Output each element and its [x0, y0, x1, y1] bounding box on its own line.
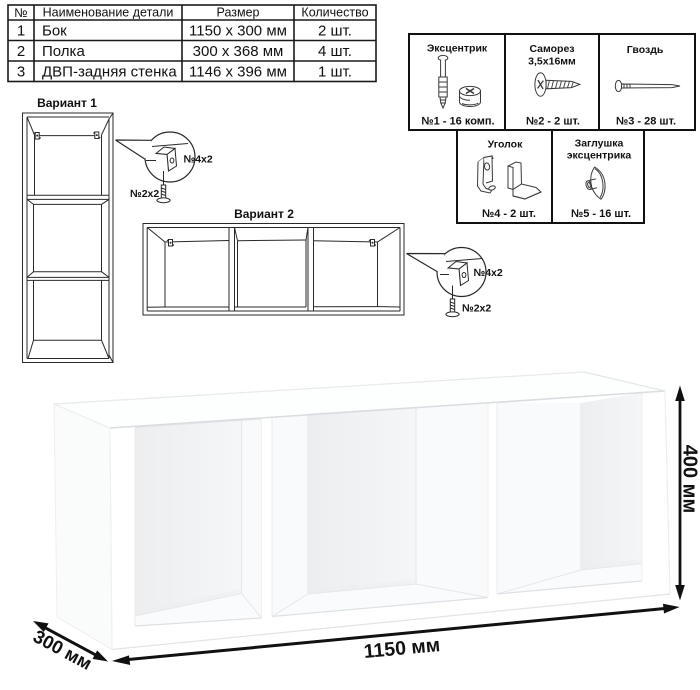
- svg-text:Наименование детали: Наименование детали: [43, 6, 174, 20]
- svg-text:Бок: Бок: [42, 23, 67, 40]
- svg-text:4 шт.: 4 шт.: [318, 43, 352, 60]
- svg-text:№2х2: №2х2: [130, 188, 159, 200]
- svg-text:№3 - 28 шт.: №3 - 28 шт.: [616, 116, 676, 128]
- svg-text:Количество: Количество: [301, 6, 368, 20]
- svg-text:Размер: Размер: [217, 6, 260, 20]
- svg-text:№4х2: №4х2: [474, 267, 503, 279]
- svg-text:1: 1: [17, 23, 25, 40]
- svg-text:Вариант 1: Вариант 1: [37, 96, 97, 110]
- svg-text:2 шт.: 2 шт.: [318, 23, 352, 40]
- svg-text:№1 - 16 комп.: №1 - 16 комп.: [421, 116, 494, 128]
- svg-text:Полка: Полка: [42, 43, 85, 60]
- svg-text:1150 х 300 мм: 1150 х 300 мм: [189, 23, 287, 40]
- svg-text:Уголок: Уголок: [488, 139, 523, 151]
- svg-text:1146 х 396 мм: 1146 х 396 мм: [189, 64, 287, 81]
- svg-text:Эксцентрик: Эксцентрик: [427, 43, 488, 55]
- svg-text:№2 - 2 шт.: №2 - 2 шт.: [526, 116, 580, 128]
- svg-text:300 х 368 мм: 300 х 368 мм: [193, 43, 284, 60]
- svg-text:400 мм: 400 мм: [679, 445, 700, 514]
- svg-text:№4 - 2 шт.: №4 - 2 шт.: [482, 208, 536, 220]
- svg-text:3: 3: [17, 64, 25, 81]
- svg-text:ДВП-задняя стенка: ДВП-задняя стенка: [42, 64, 177, 81]
- svg-text:№5 - 16 шт.: №5 - 16 шт.: [571, 208, 631, 220]
- svg-text:№: №: [14, 6, 27, 20]
- svg-text:3,5х16мм: 3,5х16мм: [528, 56, 576, 68]
- svg-text:№2х2: №2х2: [462, 303, 491, 315]
- svg-text:1 шт.: 1 шт.: [318, 64, 352, 81]
- svg-text:Гвоздь: Гвоздь: [627, 44, 664, 56]
- svg-text:№4х2: №4х2: [184, 154, 213, 166]
- svg-text:эксцентрика: эксцентрика: [567, 150, 632, 162]
- svg-text:1150 мм: 1150 мм: [363, 634, 441, 663]
- svg-text:Саморез: Саморез: [529, 43, 574, 55]
- svg-text:Вариант 2: Вариант 2: [234, 207, 294, 221]
- svg-text:2: 2: [17, 43, 25, 60]
- svg-text:Заглушка: Заглушка: [575, 138, 624, 150]
